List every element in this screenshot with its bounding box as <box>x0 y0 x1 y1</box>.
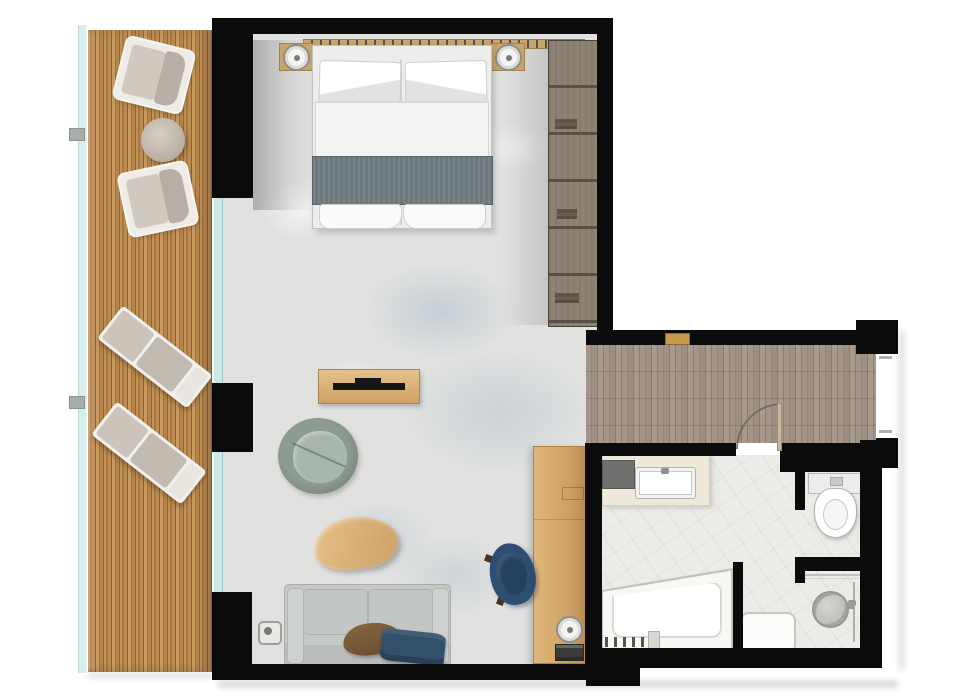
shower-side-fixture <box>853 582 855 642</box>
wardrobe-contents <box>555 119 577 123</box>
floor-lamp <box>258 621 282 645</box>
glass-railing <box>78 25 87 673</box>
railing-bracket <box>69 128 85 141</box>
wall-column-mid-left <box>212 383 253 452</box>
wardrobe-front-shadow <box>500 45 548 325</box>
vanity-shelf-dark <box>602 460 635 489</box>
toilet-bowl <box>814 488 857 538</box>
hallway-floor <box>586 345 876 443</box>
wall-bath-left <box>585 443 602 668</box>
toilet-flush-button <box>830 477 843 486</box>
entry-door-mark <box>879 356 892 359</box>
round-side-table <box>141 118 185 162</box>
wall-wc-left-stub <box>795 472 805 510</box>
bed-runner <box>312 156 493 205</box>
chair-seat <box>293 431 347 483</box>
shower-glass-rail <box>795 574 867 576</box>
wall-top <box>212 18 613 34</box>
tv-console <box>318 369 420 404</box>
duvet <box>315 101 489 160</box>
wall-bath-right <box>860 440 882 668</box>
wall-bath-top-left <box>586 443 736 456</box>
wardrobe <box>548 40 599 327</box>
shower-glass-rail <box>795 578 867 579</box>
sofa <box>284 584 451 668</box>
wall-bottom-living <box>212 664 612 680</box>
door-leaf <box>777 403 782 451</box>
floor-plan <box>0 0 970 700</box>
double-bed <box>312 45 492 229</box>
wall-wc-bottom <box>795 557 870 571</box>
chair-navy-seat <box>493 550 531 597</box>
table-lamp <box>283 44 310 71</box>
pillow <box>318 60 401 104</box>
tub-spout <box>648 631 660 649</box>
wall-hall-top <box>586 330 858 345</box>
desk-lamp <box>556 616 583 643</box>
drop-shadow-deck <box>88 673 212 681</box>
glass-wall-lower <box>212 452 223 592</box>
desk-seam-line <box>534 519 586 520</box>
desk-seam <box>562 487 584 500</box>
faucet <box>661 468 669 474</box>
wall-right-bedroom <box>597 18 613 333</box>
tv-center-unit <box>355 378 381 384</box>
tv-soundbar <box>333 383 405 390</box>
glass-wall-upper <box>212 198 223 383</box>
wall-entry-corner-top <box>856 320 898 354</box>
throw-navy <box>380 628 447 667</box>
railing-bracket <box>69 396 85 409</box>
table-lamp <box>495 44 522 71</box>
rain-shower-head <box>812 591 849 628</box>
wall-shower-stub <box>795 557 805 583</box>
toilet-bowl-inner <box>823 499 848 530</box>
drop-shadow-bottom <box>218 681 898 691</box>
wardrobe-contents <box>555 293 579 297</box>
wall-shower-partition <box>733 562 743 650</box>
floor-lamp-bulb <box>264 627 272 635</box>
pillow <box>404 60 487 104</box>
foot-cushion <box>319 204 402 229</box>
sofa-armrest <box>287 588 304 664</box>
lounge-chair-sage <box>278 418 358 494</box>
wall-column-upper-left <box>212 30 253 198</box>
books <box>555 644 584 661</box>
wardrobe-contents <box>557 209 577 213</box>
drop-shadow-right <box>899 330 908 670</box>
gold-threshold-accent <box>665 333 690 345</box>
tub-faucet-controls <box>605 637 645 647</box>
foot-cushion <box>403 204 486 229</box>
entry-door-mark <box>879 430 892 433</box>
